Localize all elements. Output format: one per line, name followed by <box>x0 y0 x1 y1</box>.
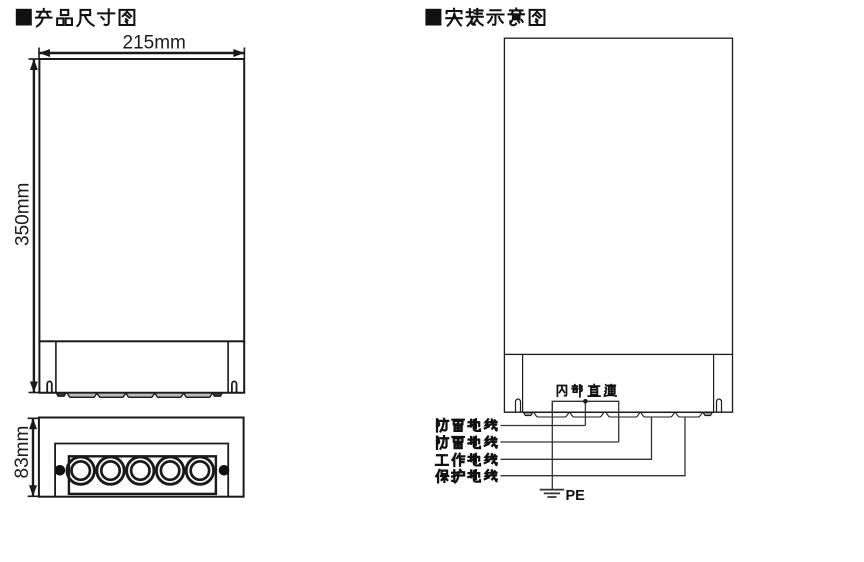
svg-text:215mm: 215mm <box>123 33 186 54</box>
svg-text:PE: PE <box>566 488 586 504</box>
svg-text:350mm: 350mm <box>13 183 34 246</box>
svg-text:83mm: 83mm <box>12 426 33 479</box>
